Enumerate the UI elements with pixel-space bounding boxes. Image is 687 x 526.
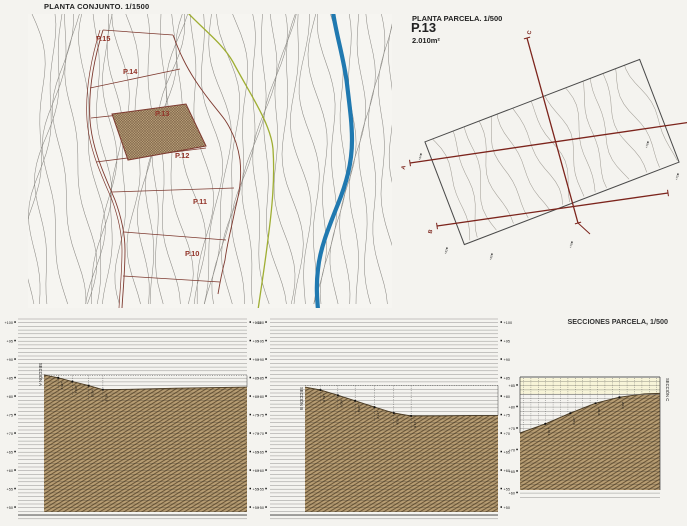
map-parcel-label: P.11 <box>193 197 207 206</box>
secciones-title: SECCIONES PARCELA, 1/500 <box>455 317 668 326</box>
svg-text:+78,6: +78,6 <box>572 417 576 425</box>
svg-text:+85: +85 <box>504 377 510 381</box>
map-parcel-label: P.10 <box>185 249 199 258</box>
svg-text:+50: +50 <box>258 506 264 510</box>
svg-text:+90: +90 <box>504 358 510 362</box>
svg-text:+65: +65 <box>7 451 13 455</box>
svg-text:+80: +80 <box>504 395 510 399</box>
svg-text:+75: +75 <box>674 174 680 180</box>
svg-text:+70: +70 <box>7 432 13 436</box>
svg-text:+90: +90 <box>258 358 264 362</box>
svg-text:+80,4: +80,4 <box>339 399 343 407</box>
parcela-area: 2.010m² <box>412 36 440 45</box>
svg-text:+70: +70 <box>509 449 515 453</box>
parcela-id: P.13 <box>411 20 436 35</box>
svg-text:+78: +78 <box>568 242 574 248</box>
section-name-label: SECCIÓN C <box>665 378 670 401</box>
svg-text:A: A <box>401 165 408 170</box>
svg-text:+77,2: +77,2 <box>376 411 380 419</box>
svg-text:+78,9: +78,9 <box>357 405 361 413</box>
svg-text:+95: +95 <box>258 340 264 344</box>
svg-text:+76: +76 <box>644 142 650 148</box>
svg-text:+80: +80 <box>7 395 13 399</box>
map-parcel-label: P.15 <box>96 34 110 43</box>
svg-text:+85: +85 <box>7 377 13 381</box>
svg-text:+75: +75 <box>258 414 264 418</box>
svg-text:+55: +55 <box>7 488 13 492</box>
parcel-plan: ABC+84+82+80+78+76+75 <box>401 30 687 261</box>
section-name-label: SECCIÓN A <box>38 363 43 386</box>
section-panel: +85+80+75+70+65+60+76,1+78,6+80,9+82,3SE… <box>509 377 670 497</box>
svg-text:+75,6: +75,6 <box>395 417 399 425</box>
svg-text:+75: +75 <box>504 414 510 418</box>
svg-text:+60: +60 <box>258 469 264 473</box>
section-panel: +100+100+95+95+90+90+85+85+80+80+75+75+7… <box>4 319 261 519</box>
svg-text:+50: +50 <box>504 506 510 510</box>
map-parcel-label: P.13 <box>155 109 169 118</box>
section-panel: +100+100+95+95+90+90+85+85+80+80+75+75+7… <box>255 319 512 519</box>
svg-text:+76,1: +76,1 <box>547 428 551 436</box>
map-parcel-label: P.12 <box>175 151 189 160</box>
svg-text:+100: +100 <box>255 321 264 325</box>
svg-text:+80,9: +80,9 <box>597 407 601 415</box>
svg-text:+84: +84 <box>417 154 423 160</box>
svg-text:+95: +95 <box>7 340 13 344</box>
svg-text:+70: +70 <box>258 432 264 436</box>
svg-text:+81,8: +81,8 <box>322 394 326 402</box>
svg-text:+75: +75 <box>7 414 13 418</box>
svg-text:+85: +85 <box>509 384 515 388</box>
svg-text:+55: +55 <box>258 488 264 492</box>
svg-text:+60: +60 <box>7 469 13 473</box>
svg-text:+80: +80 <box>258 395 264 399</box>
svg-text:+80: +80 <box>488 254 494 260</box>
contour-map: P.15P.14P.13P.12P.11P.10 <box>23 12 407 310</box>
svg-text:+82: +82 <box>443 248 449 254</box>
drawing-sheet: P.15P.14P.13P.12P.11P.10ABC+84+82+80+78+… <box>0 0 687 526</box>
svg-text:+65: +65 <box>258 451 264 455</box>
section-name-label: SECCIÓN B <box>299 387 304 410</box>
svg-text:+80: +80 <box>509 406 515 410</box>
planta-conjunto-title: PLANTA CONJUNTO. 1/1500 <box>44 2 149 11</box>
svg-text:+81,9: +81,9 <box>104 394 108 402</box>
svg-text:+74,8: +74,8 <box>413 420 417 428</box>
map-parcel-label: P.14 <box>123 67 138 76</box>
svg-text:+70: +70 <box>504 432 510 436</box>
svg-text:+60: +60 <box>509 492 515 496</box>
svg-text:+84,1: +84,1 <box>74 386 78 394</box>
svg-text:+90: +90 <box>7 358 13 362</box>
svg-text:+75: +75 <box>509 427 515 431</box>
svg-text:+50: +50 <box>7 506 13 510</box>
svg-text:C: C <box>527 30 534 35</box>
svg-text:+65: +65 <box>509 470 515 474</box>
drawing-canvas: P.15P.14P.13P.12P.11P.10ABC+84+82+80+78+… <box>0 0 687 526</box>
svg-text:B: B <box>428 229 435 234</box>
svg-text:+85: +85 <box>258 377 264 381</box>
svg-text:+85,1: +85,1 <box>60 382 64 390</box>
svg-text:+83,0: +83,0 <box>90 390 94 398</box>
svg-text:+82,3: +82,3 <box>621 401 625 409</box>
svg-text:+95: +95 <box>504 340 510 344</box>
svg-text:+100: +100 <box>4 321 13 325</box>
